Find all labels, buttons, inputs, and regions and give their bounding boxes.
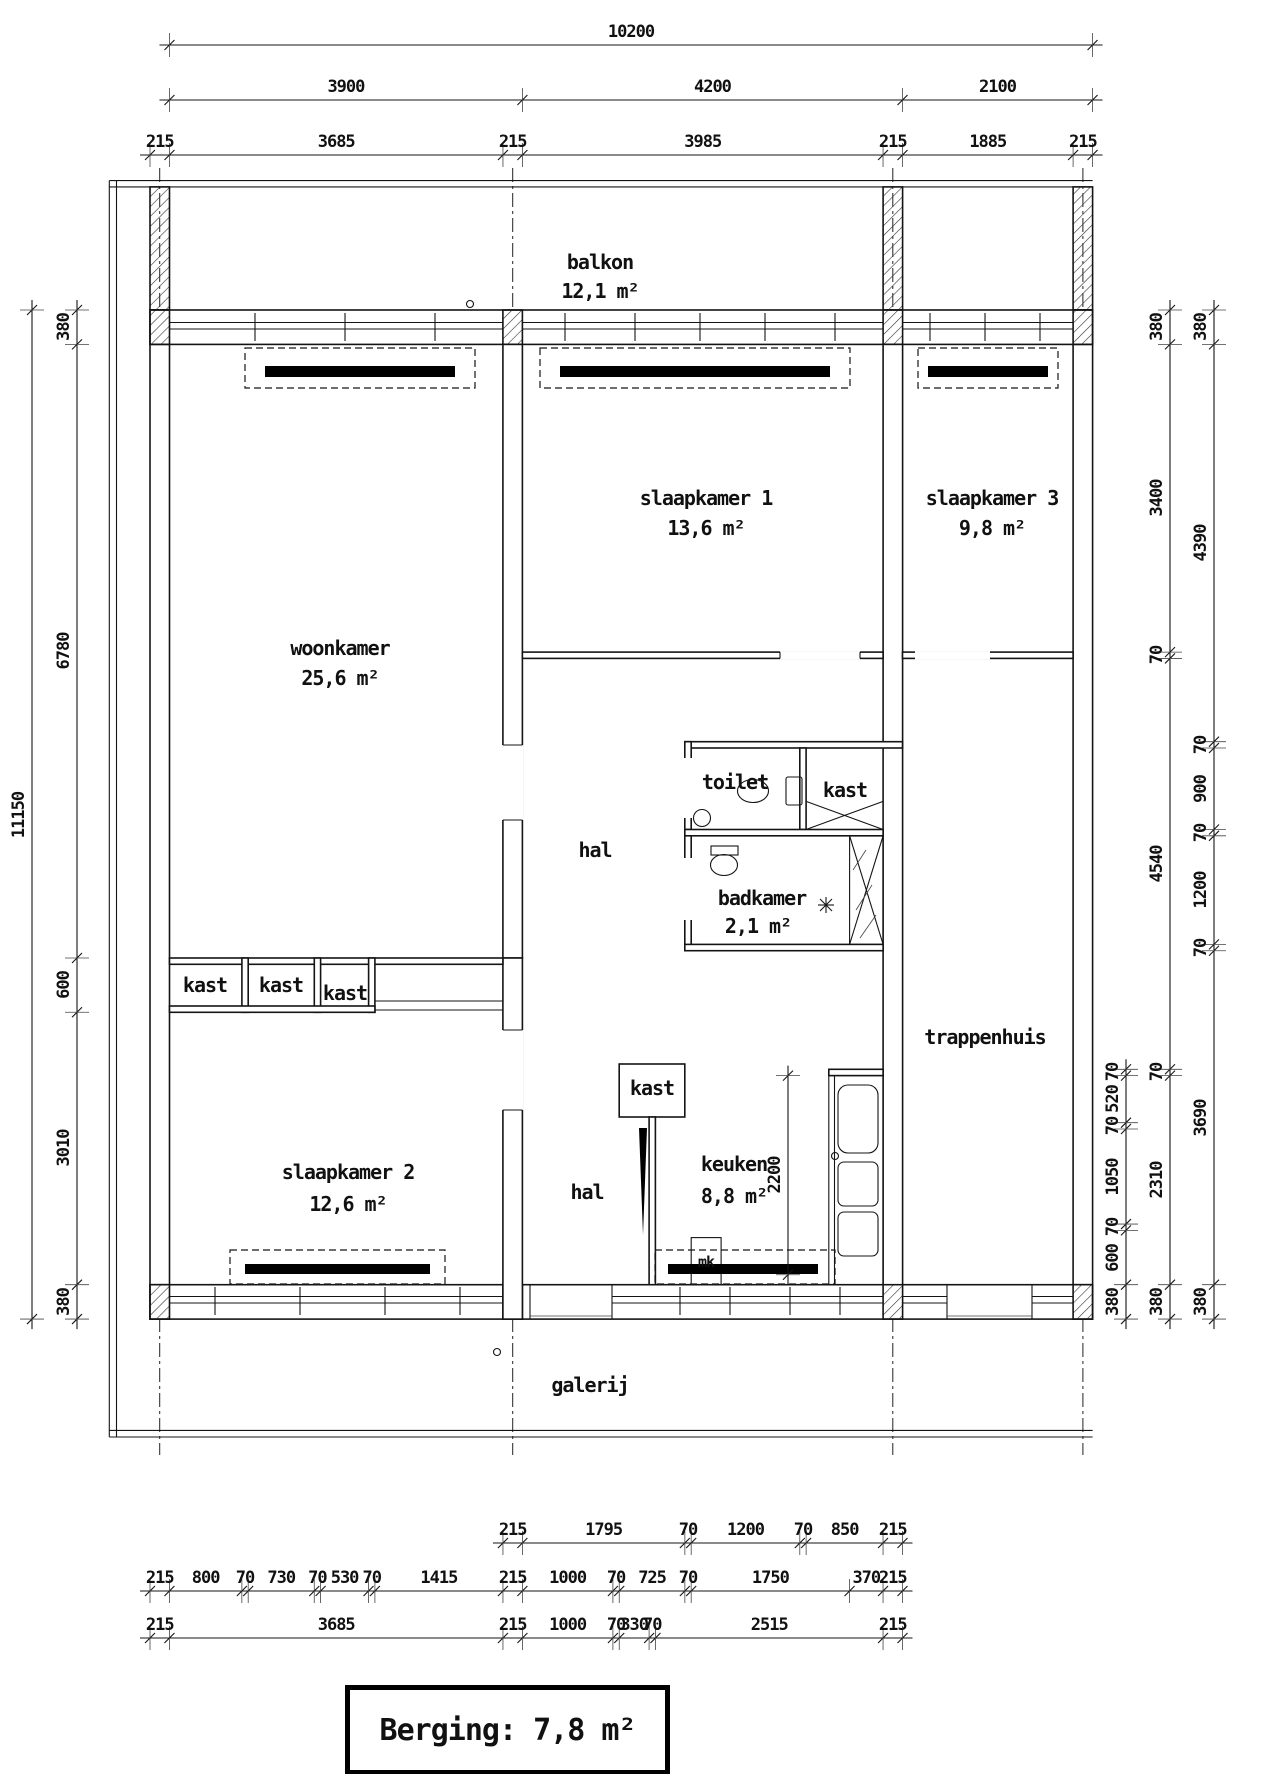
dim-label: 600	[54, 971, 74, 999]
dim-label: 3685	[318, 132, 355, 152]
dim-label: 70	[308, 1568, 326, 1588]
dim-label: 370	[852, 1568, 880, 1588]
dim-label: 1000	[549, 1615, 586, 1635]
dim-label: 4200	[694, 77, 731, 97]
room-label: kast	[630, 1076, 674, 1100]
dim-label: 215	[879, 1568, 907, 1588]
berging-label: Berging: 7,8 m²	[380, 1713, 636, 1748]
room-label: 12,1 m²	[561, 279, 638, 303]
room-label: 2,1 m²	[725, 914, 791, 938]
dim-label: 725	[638, 1568, 666, 1588]
fixtures	[639, 777, 883, 1285]
bal-door-symbol	[467, 301, 474, 308]
room-label: badkamer	[718, 886, 806, 910]
dim-label: 10200	[608, 22, 654, 42]
dim-label: 70	[1191, 823, 1211, 841]
dim-label: 1200	[1191, 872, 1211, 909]
room-label: 12,6 m²	[309, 1192, 386, 1216]
dim-label: 70	[1147, 1063, 1167, 1081]
dim-label: 70	[362, 1568, 380, 1588]
dim-label: 2200	[765, 1157, 785, 1194]
dim-label: 4390	[1191, 525, 1211, 562]
gal-door-symbol	[494, 1349, 501, 1356]
berging-box: Berging: 7,8 m²	[345, 1685, 670, 1774]
dim-label: 1795	[585, 1520, 622, 1540]
floorplan-page: 1020039004200210021536852153985215188521…	[0, 0, 1280, 1774]
dim-label: 70	[1191, 736, 1211, 754]
room-label: toilet	[702, 770, 768, 794]
kitchen-counter	[829, 1069, 883, 1284]
room-label: 9,8 m²	[959, 516, 1025, 540]
room-label: woonkamer	[290, 636, 389, 660]
dim-label: 3985	[684, 132, 721, 152]
room-label: slaapkamer 2	[282, 1160, 415, 1184]
dim-label: 70	[1191, 938, 1211, 956]
room-label: keuken	[701, 1152, 767, 1176]
drainer-icon	[838, 1085, 878, 1153]
dim-label: 3400	[1147, 480, 1167, 517]
toilet-sink-icon	[694, 810, 711, 827]
room-label: kast	[823, 778, 867, 802]
dim-label: 800	[192, 1568, 220, 1588]
dim-label: 215	[879, 1520, 907, 1540]
room-label: kast	[323, 981, 367, 1005]
stove-icon	[838, 1212, 878, 1256]
dim-label: 215	[146, 1568, 174, 1588]
dim-label: 215	[499, 1520, 527, 1540]
dimension-lines	[20, 33, 1226, 1650]
dim-label: 600	[1103, 1244, 1123, 1272]
room-label: 25,6 m²	[301, 666, 378, 690]
dim-label: 3685	[318, 1615, 355, 1635]
dim-label: 70	[1147, 646, 1167, 664]
dim-label: 520	[1103, 1085, 1123, 1113]
dim-label: 215	[879, 1615, 907, 1635]
room-label: galerij	[551, 1373, 628, 1397]
dim-label: 1885	[969, 132, 1006, 152]
room-label: balkon	[567, 250, 633, 274]
dim-label: 215	[146, 1615, 174, 1635]
dim-label: 70	[679, 1568, 697, 1588]
floor-plan-canvas	[0, 0, 1280, 1774]
sink-icon	[838, 1162, 878, 1206]
dim-label: 70	[1103, 1117, 1123, 1135]
dim-label: 2310	[1147, 1162, 1167, 1199]
dim-label: 380	[1147, 1288, 1167, 1316]
dim-label: 380	[1191, 1288, 1211, 1316]
dim-label: 1200	[727, 1520, 764, 1540]
dim-label: 70	[794, 1520, 812, 1540]
dim-label: 3900	[327, 77, 364, 97]
door-leaf	[639, 1128, 647, 1235]
dim-label: 215	[499, 132, 527, 152]
dim-label: 3010	[54, 1130, 74, 1167]
dim-label: 380	[54, 1288, 74, 1316]
dim-label: 70	[1103, 1218, 1123, 1236]
dim-label: 1050	[1103, 1158, 1123, 1195]
dim-label: 70	[1103, 1063, 1123, 1081]
dim-label: 6780	[54, 633, 74, 670]
grid-lines	[160, 168, 1083, 1455]
dim-label: 380	[1191, 313, 1211, 341]
dim-label: 11150	[9, 791, 29, 837]
dim-label: 3690	[1191, 1099, 1211, 1136]
dim-label: 70	[679, 1520, 697, 1540]
bathroom-sink-icon	[711, 846, 739, 876]
dim-label: 1750	[752, 1568, 789, 1588]
dim-label: 215	[879, 132, 907, 152]
dim-label: 2515	[751, 1615, 788, 1635]
dim-label: 70	[643, 1615, 661, 1635]
dim-label: 70	[607, 1568, 625, 1588]
shaft	[850, 836, 884, 945]
room-label: kast	[259, 973, 303, 997]
dim-label: 215	[499, 1615, 527, 1635]
boiler-star-icon	[818, 897, 834, 913]
room-label: hal	[570, 1180, 603, 1204]
dim-label: 850	[831, 1520, 859, 1540]
room-label: kast	[183, 973, 227, 997]
dim-label: 730	[267, 1568, 295, 1588]
dim-label: 530	[331, 1568, 359, 1588]
room-label: 8,8 m²	[701, 1184, 767, 1208]
dim-label: 380	[1147, 313, 1167, 341]
room-label: slaapkamer 3	[926, 486, 1059, 510]
dim-label: 1415	[420, 1568, 457, 1588]
dim-label: 70	[236, 1568, 254, 1588]
room-label: 13,6 m²	[667, 516, 744, 540]
dim-label: 380	[1103, 1288, 1123, 1316]
dim-label: 380	[54, 313, 74, 341]
dim-label: 215	[1069, 132, 1097, 152]
dim-label: 1000	[549, 1568, 586, 1588]
dim-label: 2100	[979, 77, 1016, 97]
dim-label: 215	[499, 1568, 527, 1588]
room-label: trappenhuis	[924, 1025, 1045, 1049]
room-label: hal	[578, 838, 611, 862]
outer-walls	[150, 301, 1093, 1356]
dim-label: 215	[146, 132, 174, 152]
room-label: mk	[698, 1253, 714, 1271]
dim-label: 900	[1191, 775, 1211, 803]
dim-label: 4540	[1147, 845, 1167, 882]
room-label: slaapkamer 1	[640, 486, 773, 510]
